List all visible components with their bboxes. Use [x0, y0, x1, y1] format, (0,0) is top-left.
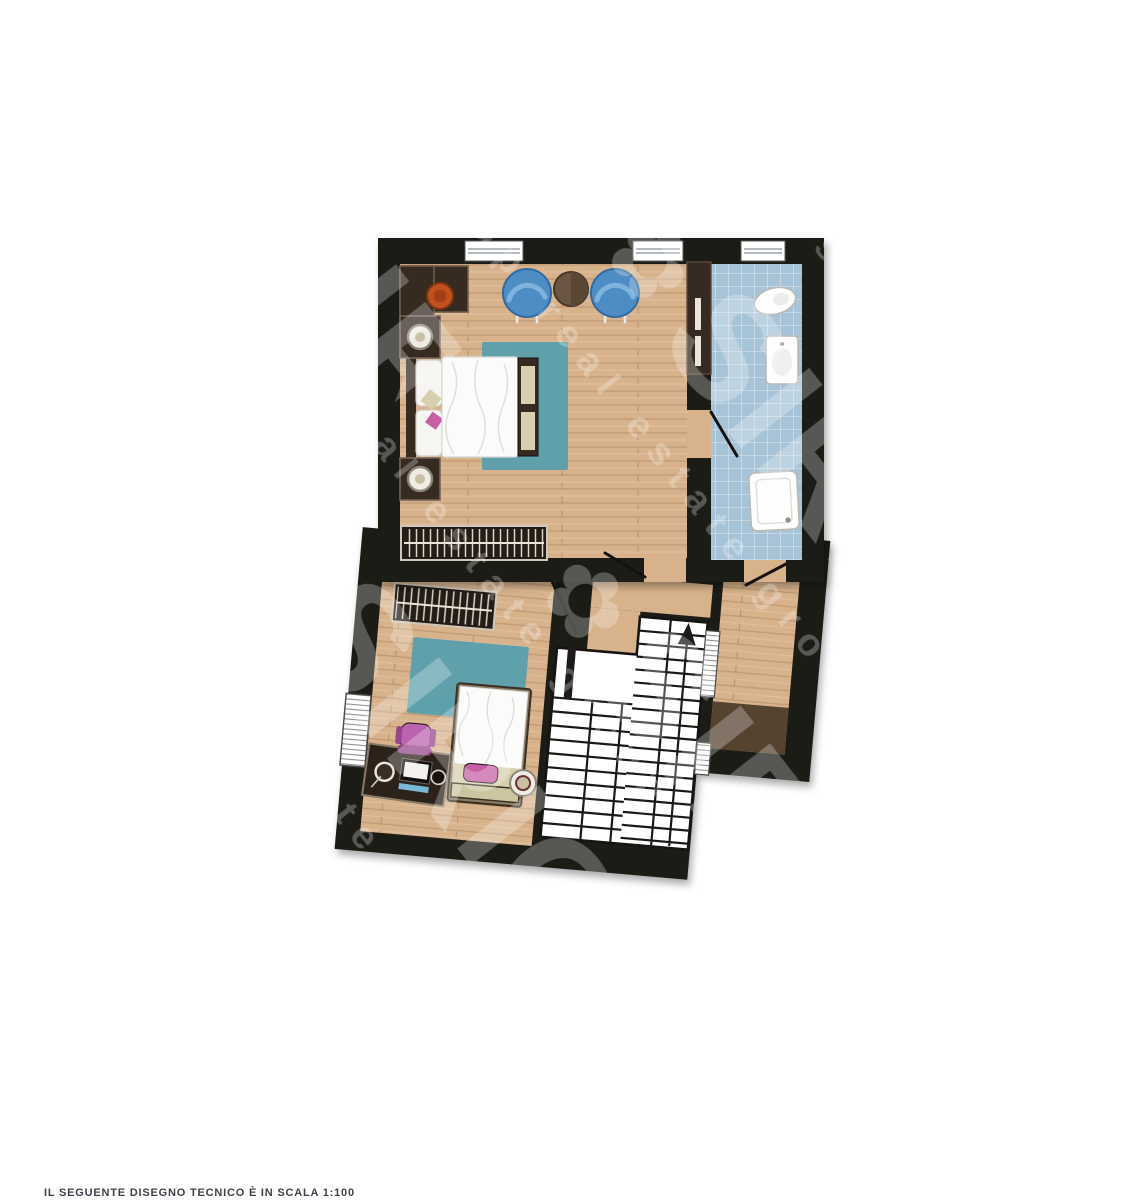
floor-plan-drawing: ✿ SIRIO real estate group ✿ SIRIO real e…	[0, 0, 1131, 1200]
watermark-overlay	[300, 200, 900, 920]
floor-plan-sheet: ✿ SIRIO real estate group ✿ SIRIO real e…	[0, 0, 1131, 1200]
scale-caption: IL SEGUENTE DISEGNO TECNICO È IN SCALA 1…	[44, 1187, 644, 1199]
